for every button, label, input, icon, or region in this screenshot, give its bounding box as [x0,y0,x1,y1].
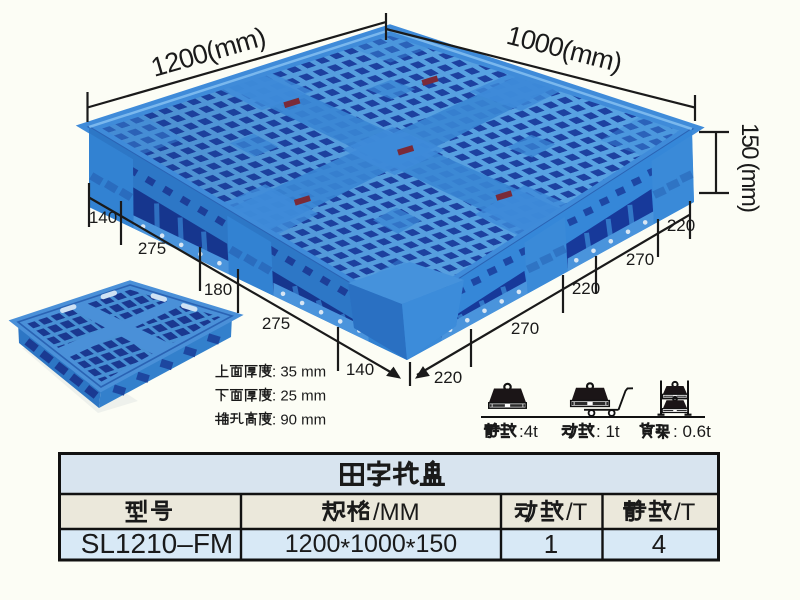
svg-text:: 90 mm: : 90 mm [272,412,326,429]
svg-text:270: 270 [626,250,654,269]
svg-text:220: 220 [434,368,462,387]
svg-text:: 0.6t: : 0.6t [673,422,711,441]
svg-text:275: 275 [138,239,166,258]
svg-text:SL1210–FM: SL1210–FM [81,528,234,559]
svg-text:: 25 mm: : 25 mm [272,388,326,405]
svg-text:180: 180 [204,280,232,299]
svg-text:/MM: /MM [373,499,420,526]
svg-text:1: 1 [544,529,558,559]
svg-text:: 35 mm: : 35 mm [272,364,326,381]
svg-text::4t: :4t [519,422,538,441]
svg-text:140: 140 [346,360,374,379]
svg-text:/T: /T [674,499,696,526]
svg-text:270: 270 [511,319,539,338]
svg-text:/T: /T [566,499,588,526]
svg-text:220: 220 [572,279,600,298]
svg-text:220: 220 [667,216,695,235]
svg-text:150 (mm): 150 (mm) [736,123,763,213]
svg-text:: 1t: : 1t [596,422,620,441]
svg-text:1200*1000*150: 1200*1000*150 [285,530,457,563]
svg-text:275: 275 [262,314,290,333]
svg-text:4: 4 [652,529,666,559]
svg-text:140: 140 [89,208,117,227]
